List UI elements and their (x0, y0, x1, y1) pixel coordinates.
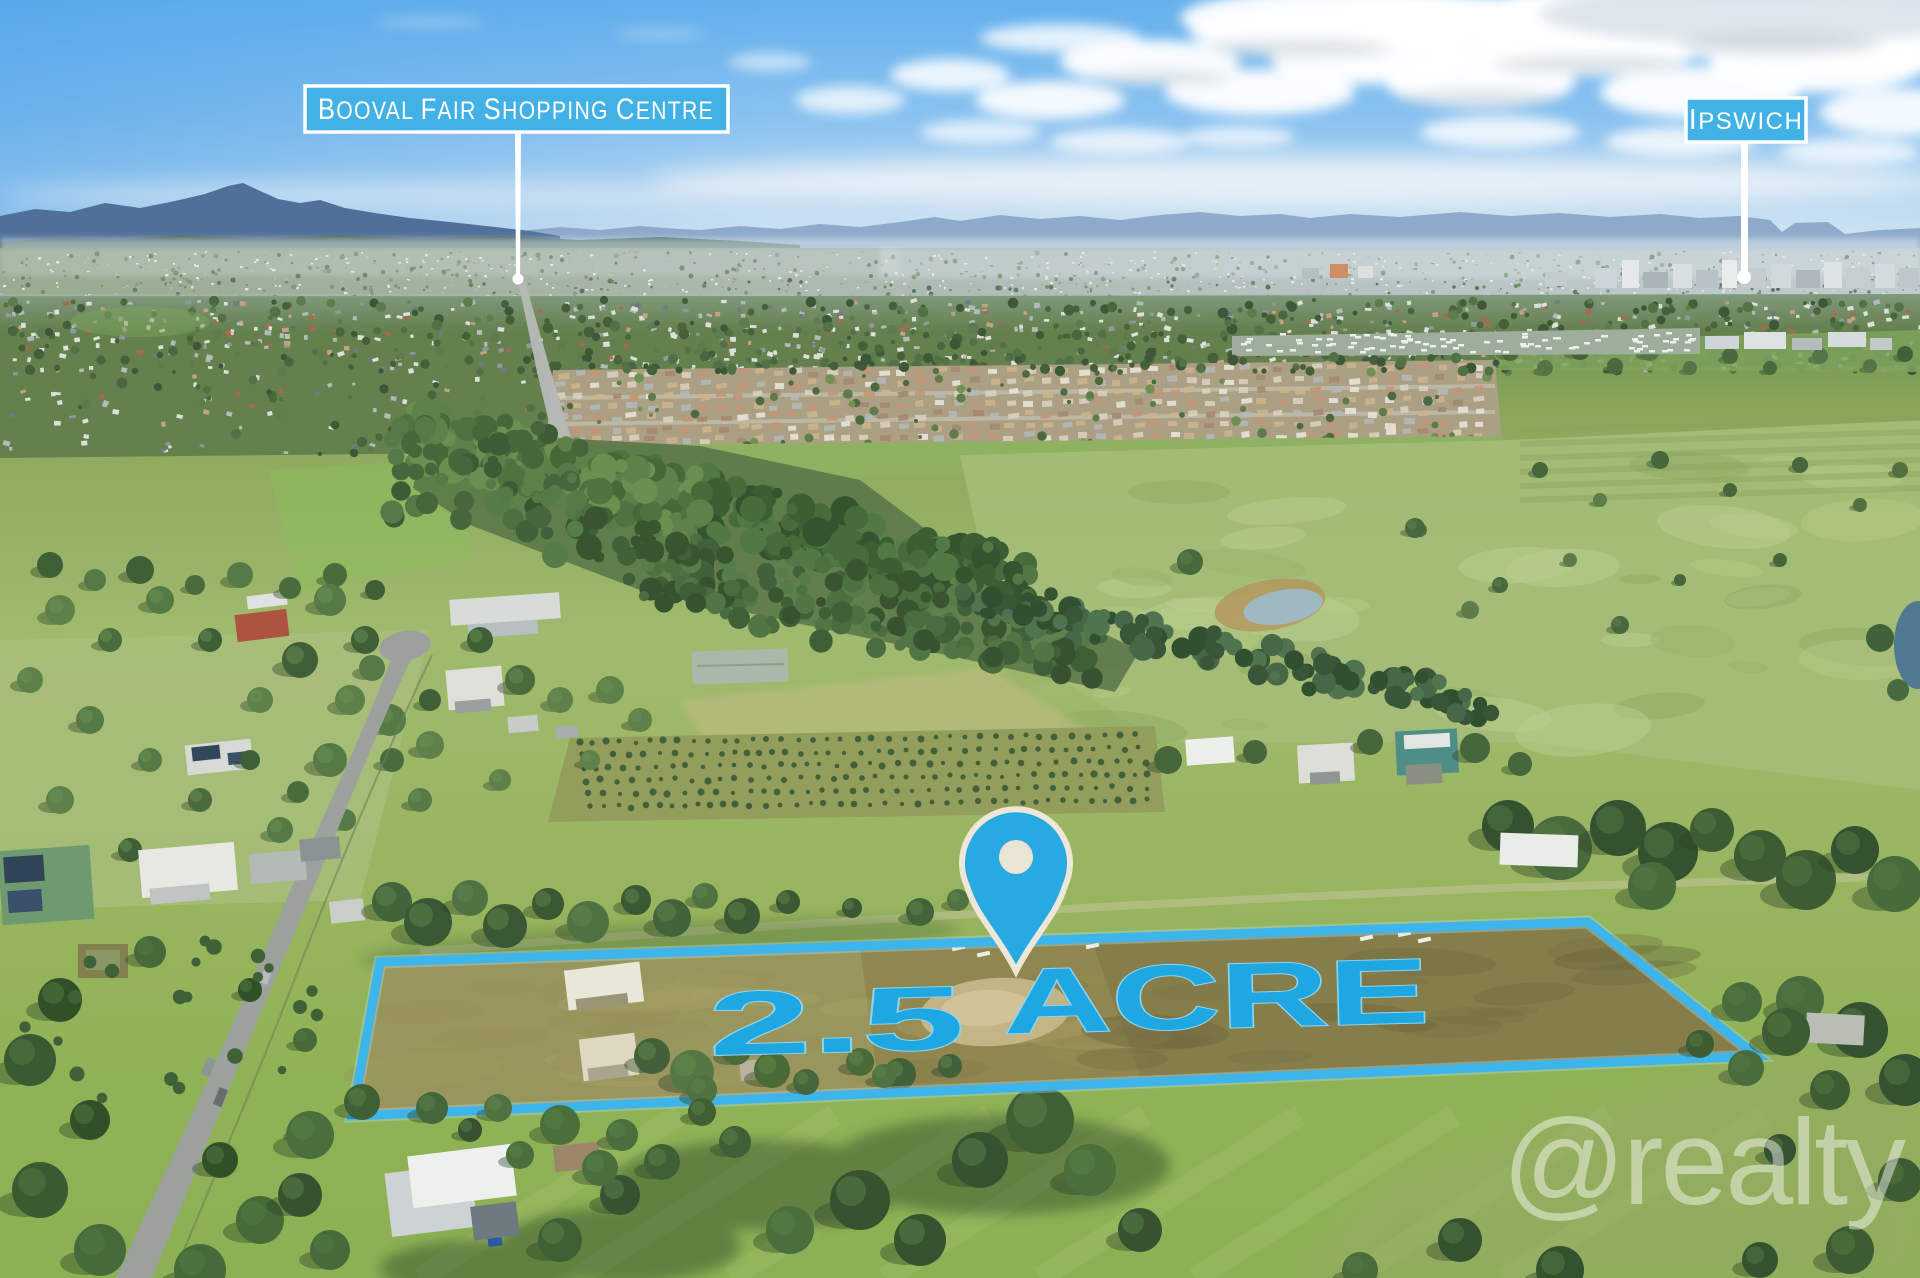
svg-text:IPSWICH: IPSWICH (1689, 104, 1804, 136)
svg-text:@realty: @realty (1502, 1094, 1906, 1230)
svg-text:ACRE: ACRE (1002, 940, 1431, 1053)
svg-text:2.5: 2.5 (707, 969, 966, 1076)
svg-text:BOOVAL FAIR SHOPPING CENTRE: BOOVAL FAIR SHOPPING CENTRE (318, 93, 714, 126)
